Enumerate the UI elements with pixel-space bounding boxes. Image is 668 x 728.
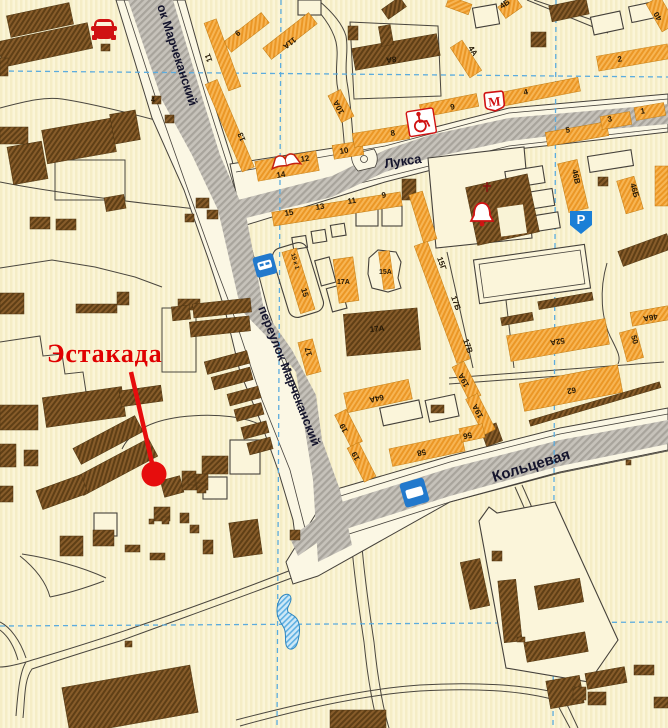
svg-text:4: 4: [151, 97, 155, 104]
svg-text:15А: 15А: [379, 269, 392, 276]
svg-text:8А: 8А: [386, 55, 397, 65]
svg-text:17А: 17А: [337, 279, 350, 286]
svg-text:17А: 17А: [369, 324, 385, 334]
svg-text:Р: Р: [577, 212, 586, 227]
svg-text:М: М: [488, 93, 502, 109]
svg-text:Эстакада: Эстакада: [47, 339, 162, 368]
